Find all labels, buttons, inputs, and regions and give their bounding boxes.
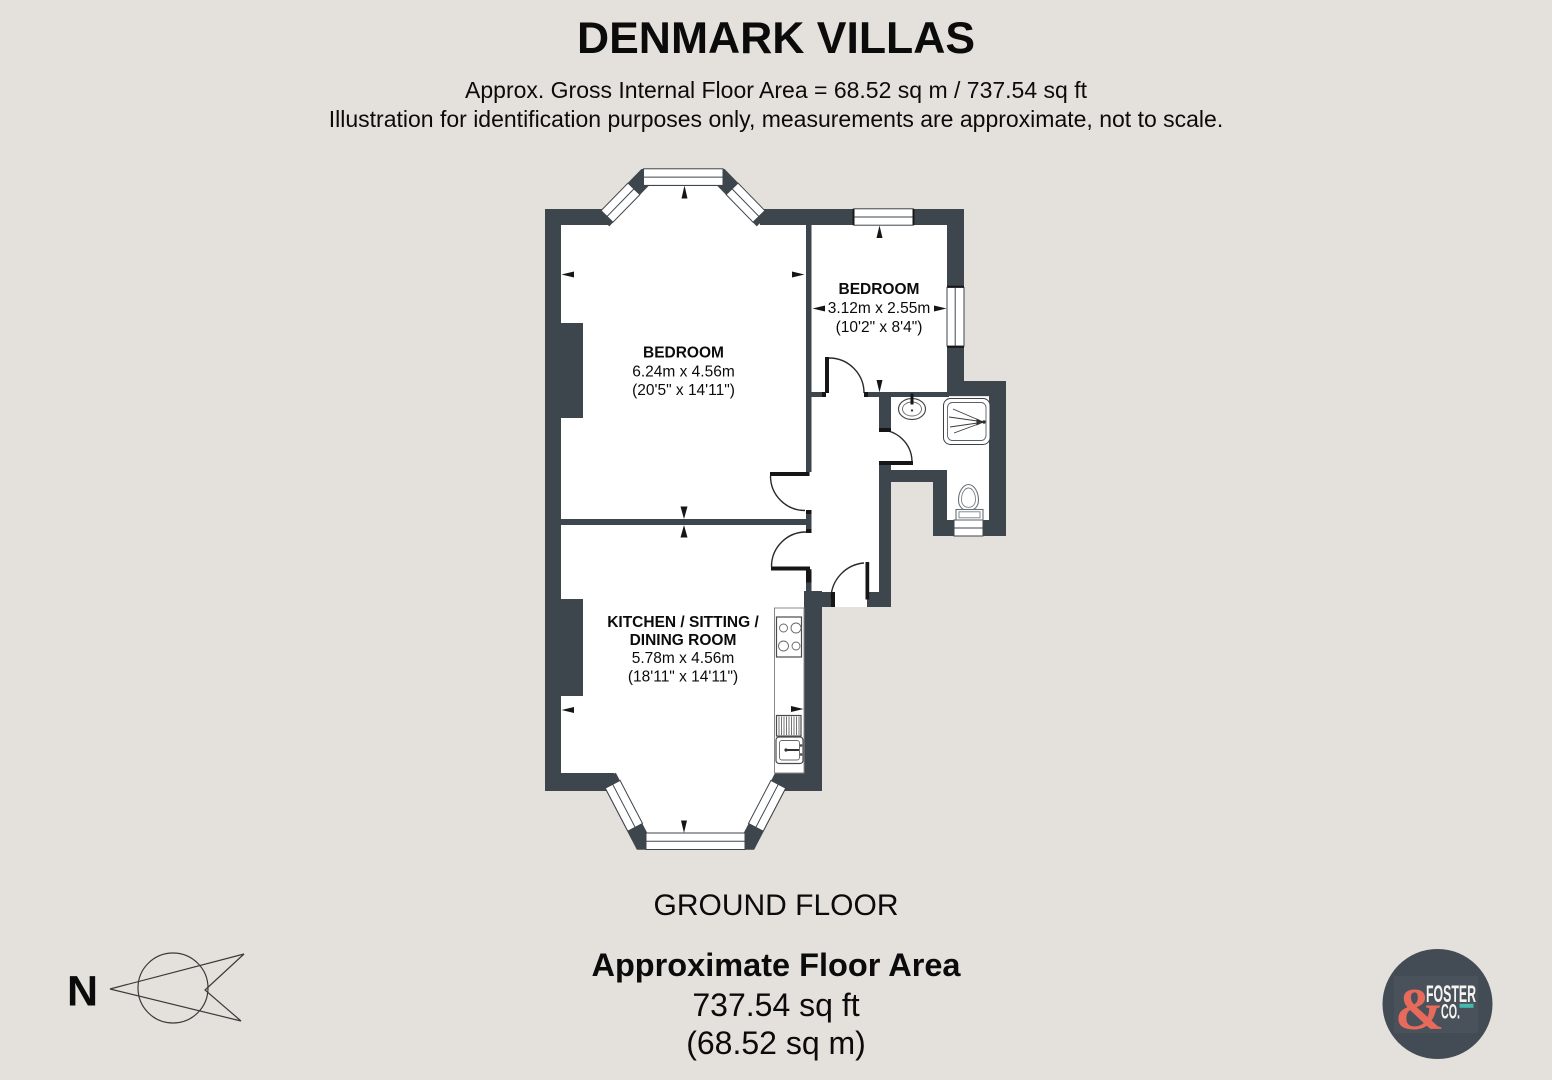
svg-text:5.78m x 4.56m: 5.78m x 4.56m <box>632 650 735 667</box>
svg-text:KITCHEN / SITTING /: KITCHEN / SITTING / <box>607 614 759 631</box>
svg-text:CO.: CO. <box>1441 1001 1460 1024</box>
svg-text:(18'11" x 14'11"): (18'11" x 14'11") <box>628 669 738 686</box>
svg-text:(10'2" x 8'4"): (10'2" x 8'4") <box>836 319 923 336</box>
svg-text:3.12m x 2.55m: 3.12m x 2.55m <box>828 300 931 317</box>
svg-text:N: N <box>67 968 98 1016</box>
svg-text:6.24m x 4.56m: 6.24m x 4.56m <box>632 364 735 381</box>
svg-text:BEDROOM: BEDROOM <box>839 281 920 298</box>
svg-text:BEDROOM: BEDROOM <box>643 345 724 362</box>
svg-text:DINING ROOM: DINING ROOM <box>630 632 737 649</box>
svg-text:(20'5" x 14'11"): (20'5" x 14'11") <box>632 382 735 399</box>
